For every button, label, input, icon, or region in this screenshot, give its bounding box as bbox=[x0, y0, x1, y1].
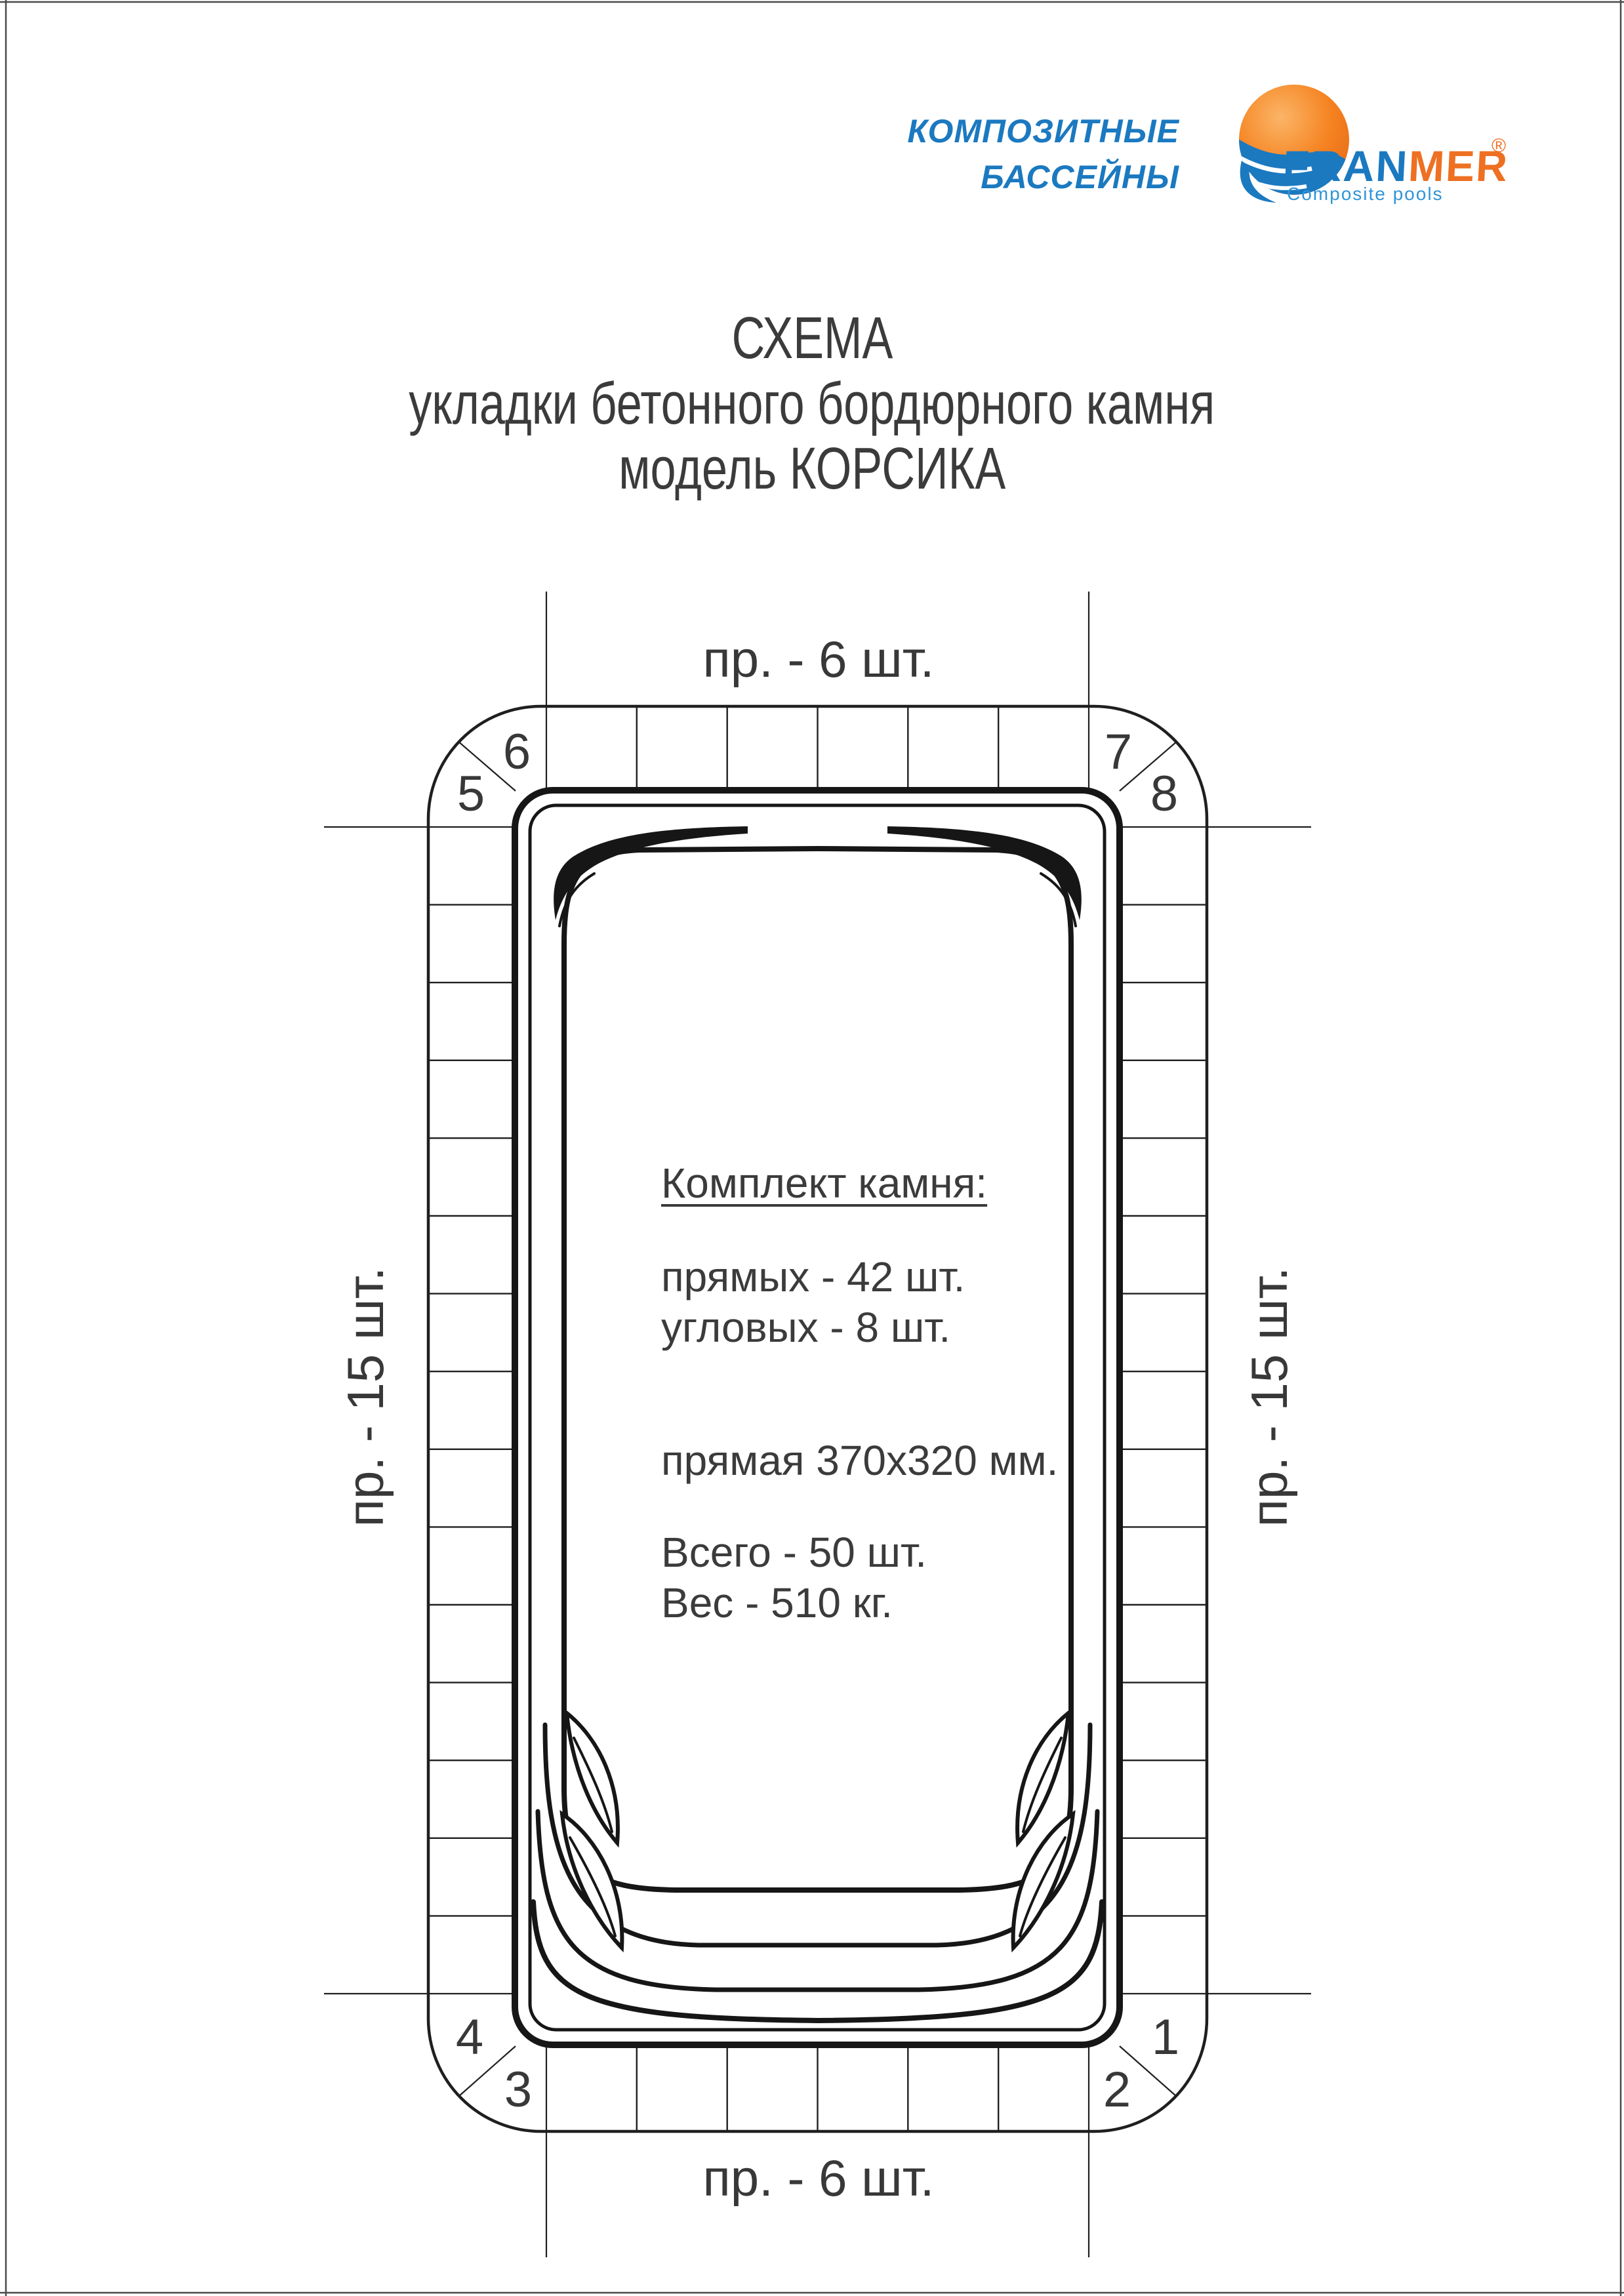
corner-number-2: 2 bbox=[1103, 2062, 1131, 2118]
brand-subtitle: Composite pools bbox=[1287, 185, 1444, 203]
stone-kit-total-weight: Вес - 510 кг. bbox=[661, 1582, 893, 1624]
registered-trademark-icon: ® bbox=[1492, 136, 1506, 156]
stone-kit-straight-size: прямая 370х320 мм. bbox=[661, 1440, 1058, 1481]
label-count-bottom: пр. - 6 шт. bbox=[703, 2149, 935, 2207]
logo-tagline-line1: КОМПОЗИТНЫЕ bbox=[0, 113, 1179, 150]
corner-number-8: 8 bbox=[1150, 766, 1178, 822]
corner-number-3: 3 bbox=[504, 2062, 532, 2118]
stone-kit-heading: Комплект камня: bbox=[661, 1162, 987, 1204]
corner-number-1: 1 bbox=[1152, 2009, 1179, 2065]
brand-wordmark: FRANMER bbox=[1282, 144, 1509, 188]
label-count-left: пр. - 15 шт. bbox=[336, 1267, 394, 1527]
brand-wordmark-fran: FRAN bbox=[1282, 142, 1410, 190]
stone-kit-corner-count: угловых - 8 шт. bbox=[661, 1306, 950, 1348]
label-count-top: пр. - 6 шт. bbox=[703, 630, 935, 688]
stone-kit-straight-count: прямых - 42 шт. bbox=[661, 1256, 965, 1298]
page-title-line2: укладки бетонного бордюрного камня bbox=[0, 374, 1624, 433]
corner-number-5: 5 bbox=[457, 766, 485, 822]
logo-tagline-line2: БАССЕЙНЫ bbox=[0, 159, 1179, 195]
pool-shell bbox=[515, 790, 1120, 2045]
pool-rim-outer bbox=[515, 790, 1120, 2045]
page-title-line3: модель КОРСИКА bbox=[0, 439, 1624, 498]
label-count-right: пр. - 15 шт. bbox=[1240, 1267, 1298, 1527]
corner-number-6: 6 bbox=[503, 724, 531, 780]
page-title-line1: СХЕМА bbox=[0, 309, 1624, 368]
corner-number-7: 7 bbox=[1105, 724, 1132, 780]
stone-kit-total-count: Всего - 50 шт. bbox=[661, 1531, 927, 1573]
corner-number-4: 4 bbox=[456, 2009, 483, 2065]
